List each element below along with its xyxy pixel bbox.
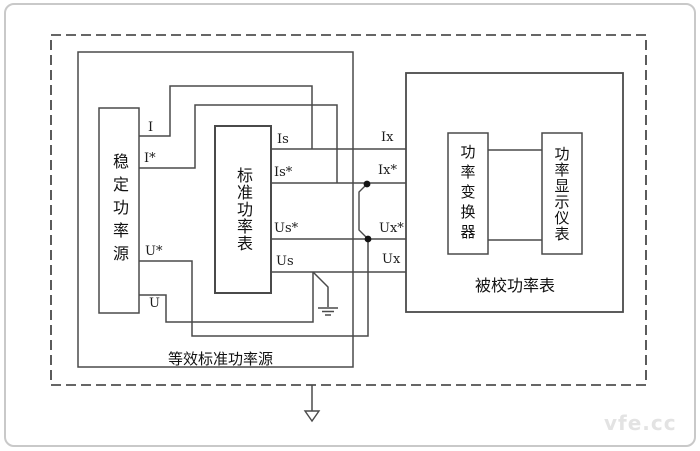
terminal-label-ix-star: Ix* [378, 164, 397, 178]
junction-dot-ux-star [365, 236, 372, 243]
terminal-label-ux: Ux [382, 253, 400, 267]
ground-icon [313, 272, 338, 315]
terminal-label-u-star: U* [145, 245, 162, 259]
terminal-label-ix: Ix [381, 131, 393, 145]
junction-dot-ix-star [364, 181, 371, 188]
power-display-label: 功率显示仪表 [542, 133, 582, 254]
terminal-label-u: U [149, 297, 160, 311]
terminal-label-us-star: Us* [274, 222, 298, 236]
dut-label: 被校功率表 [440, 272, 590, 296]
down-arrow-icon [305, 385, 319, 421]
terminal-label-us: Us [276, 255, 294, 269]
terminal-label-i-star: I* [144, 152, 156, 166]
terminal-label-i: I [148, 121, 153, 135]
equivalent-source-label: 等效标准功率源 [168, 348, 273, 369]
watermark: vfe.cc [604, 411, 677, 435]
terminal-label-is: Is [277, 133, 289, 147]
terminal-label-ux-star: Ux* [379, 222, 404, 236]
stable-source-label: 稳定功率源 [99, 108, 139, 313]
junction-jog-link [359, 184, 367, 238]
terminal-label-is-star: Is* [274, 166, 292, 180]
power-converter-label: 功率变换器 [448, 133, 488, 254]
standard-meter-label: 标准功率表 [215, 126, 271, 293]
screenshot-stage: I I* U* U Is Is* Us* Us Ix Ix* Ux* Ux 稳定… [0, 0, 700, 451]
